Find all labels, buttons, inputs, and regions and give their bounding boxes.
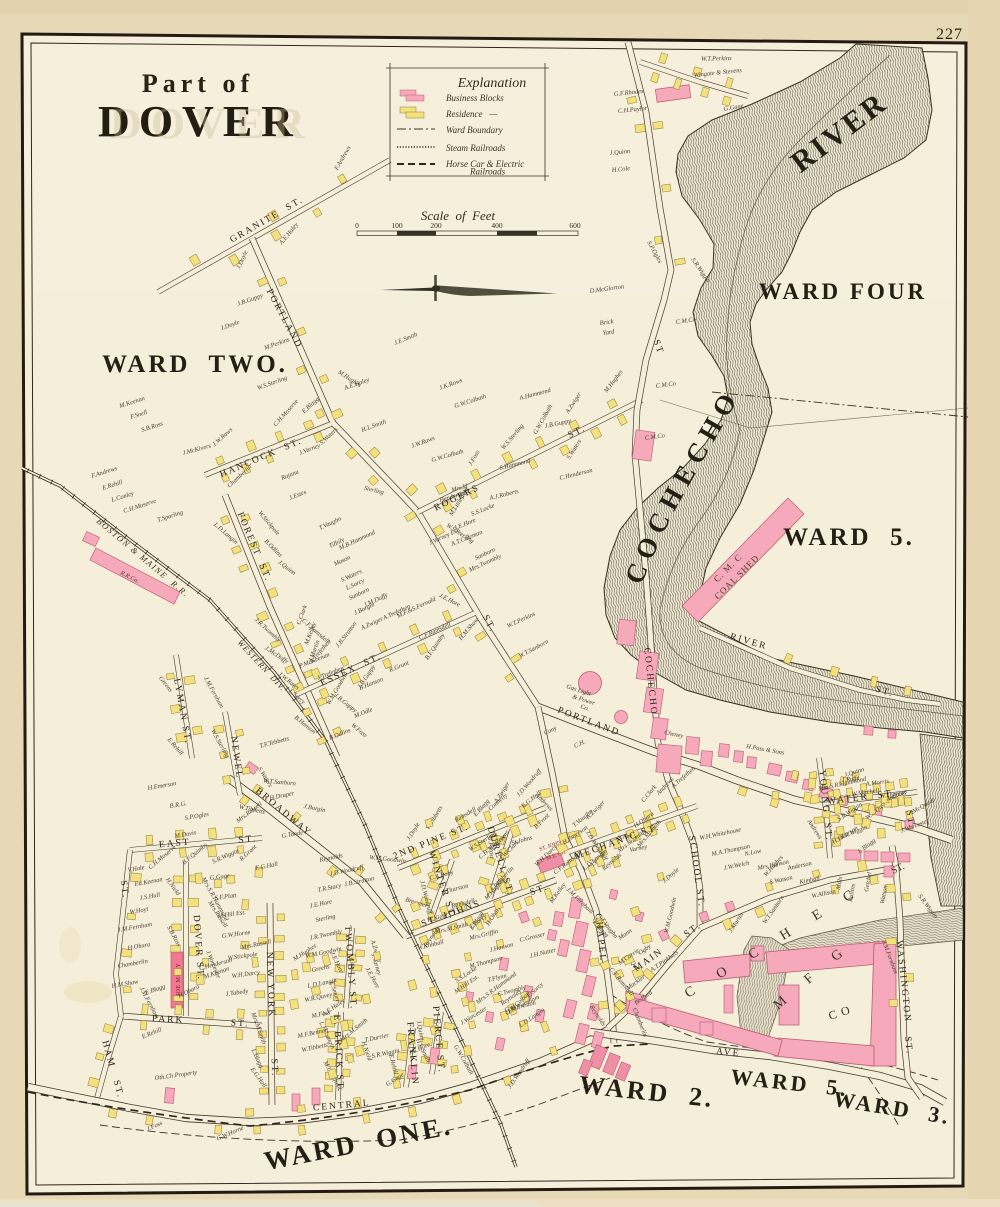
svg-text:Business Blocks: Business Blocks (446, 93, 504, 103)
svg-text:ST.: ST. (238, 834, 258, 846)
svg-text:600: 600 (569, 221, 581, 230)
svg-text:Part of: Part of (142, 69, 254, 98)
svg-text:Steam Railroads: Steam Railroads (446, 143, 506, 153)
svg-text:WARD 5.: WARD 5. (783, 524, 915, 551)
svg-text:WARD TWO.: WARD TWO. (102, 351, 288, 378)
svg-text:Railroads: Railroads (469, 167, 506, 177)
svg-text:DOVER: DOVER (110, 99, 314, 148)
svg-text:PARK: PARK (152, 1014, 185, 1026)
svg-text:W.T.Perkins: W.T.Perkins (701, 55, 732, 63)
svg-text:400: 400 (491, 221, 503, 230)
svg-text:Residence —: Residence — (445, 109, 498, 119)
svg-text:ST.: ST. (230, 1019, 249, 1030)
svg-text:200: 200 (430, 221, 442, 230)
svg-text:Explanation: Explanation (457, 76, 526, 91)
svg-text:227: 227 (936, 26, 963, 43)
svg-text:ST.: ST. (902, 1036, 914, 1056)
svg-text:WARD FOUR: WARD FOUR (759, 279, 927, 304)
svg-text:0: 0 (355, 221, 359, 230)
svg-text:Ward Boundary: Ward Boundary (446, 125, 503, 135)
svg-text:100: 100 (391, 221, 403, 230)
svg-text:ST.: ST. (269, 1058, 280, 1077)
